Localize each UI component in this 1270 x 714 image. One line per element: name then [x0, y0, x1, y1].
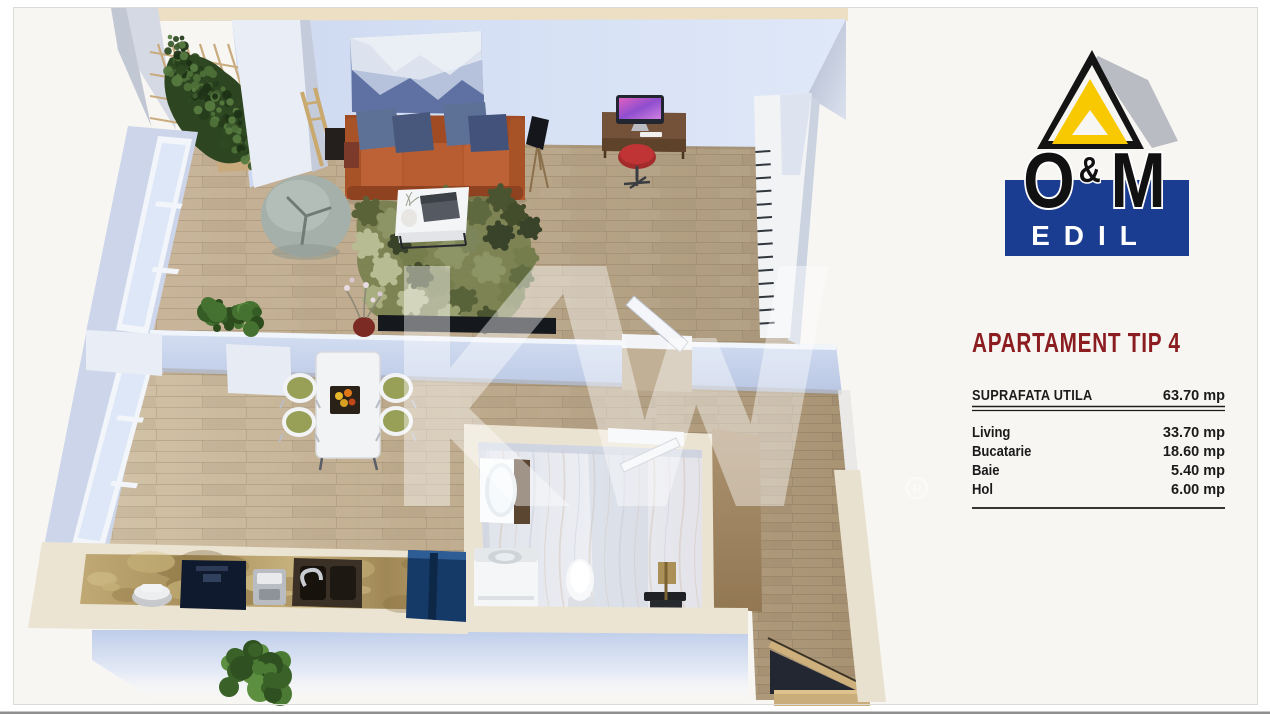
svg-text:O: O [1023, 137, 1075, 224]
svg-text:Bucatarie: Bucatarie [972, 443, 1032, 459]
svg-text:5.40 mp: 5.40 mp [1171, 463, 1225, 479]
svg-text:EDIL: EDIL [1031, 220, 1151, 251]
svg-text:33.70 mp: 33.70 mp [1163, 425, 1225, 441]
svg-text:SUPRAFATA UTILA: SUPRAFATA UTILA [972, 387, 1093, 403]
svg-text:63.70 mp: 63.70 mp [1163, 388, 1225, 404]
svg-text:Baie: Baie [972, 462, 1000, 478]
svg-text:6.00 mp: 6.00 mp [1171, 482, 1225, 498]
svg-text:Hol: Hol [972, 481, 993, 497]
svg-text:18.60 mp: 18.60 mp [1163, 444, 1225, 460]
svg-text:Living: Living [972, 424, 1010, 440]
svg-text:&: & [1079, 151, 1101, 191]
svg-text:APARTAMENT TIP 4: APARTAMENT TIP 4 [972, 328, 1181, 359]
svg-text:R: R [912, 481, 922, 496]
svg-text:M: M [1111, 137, 1166, 224]
